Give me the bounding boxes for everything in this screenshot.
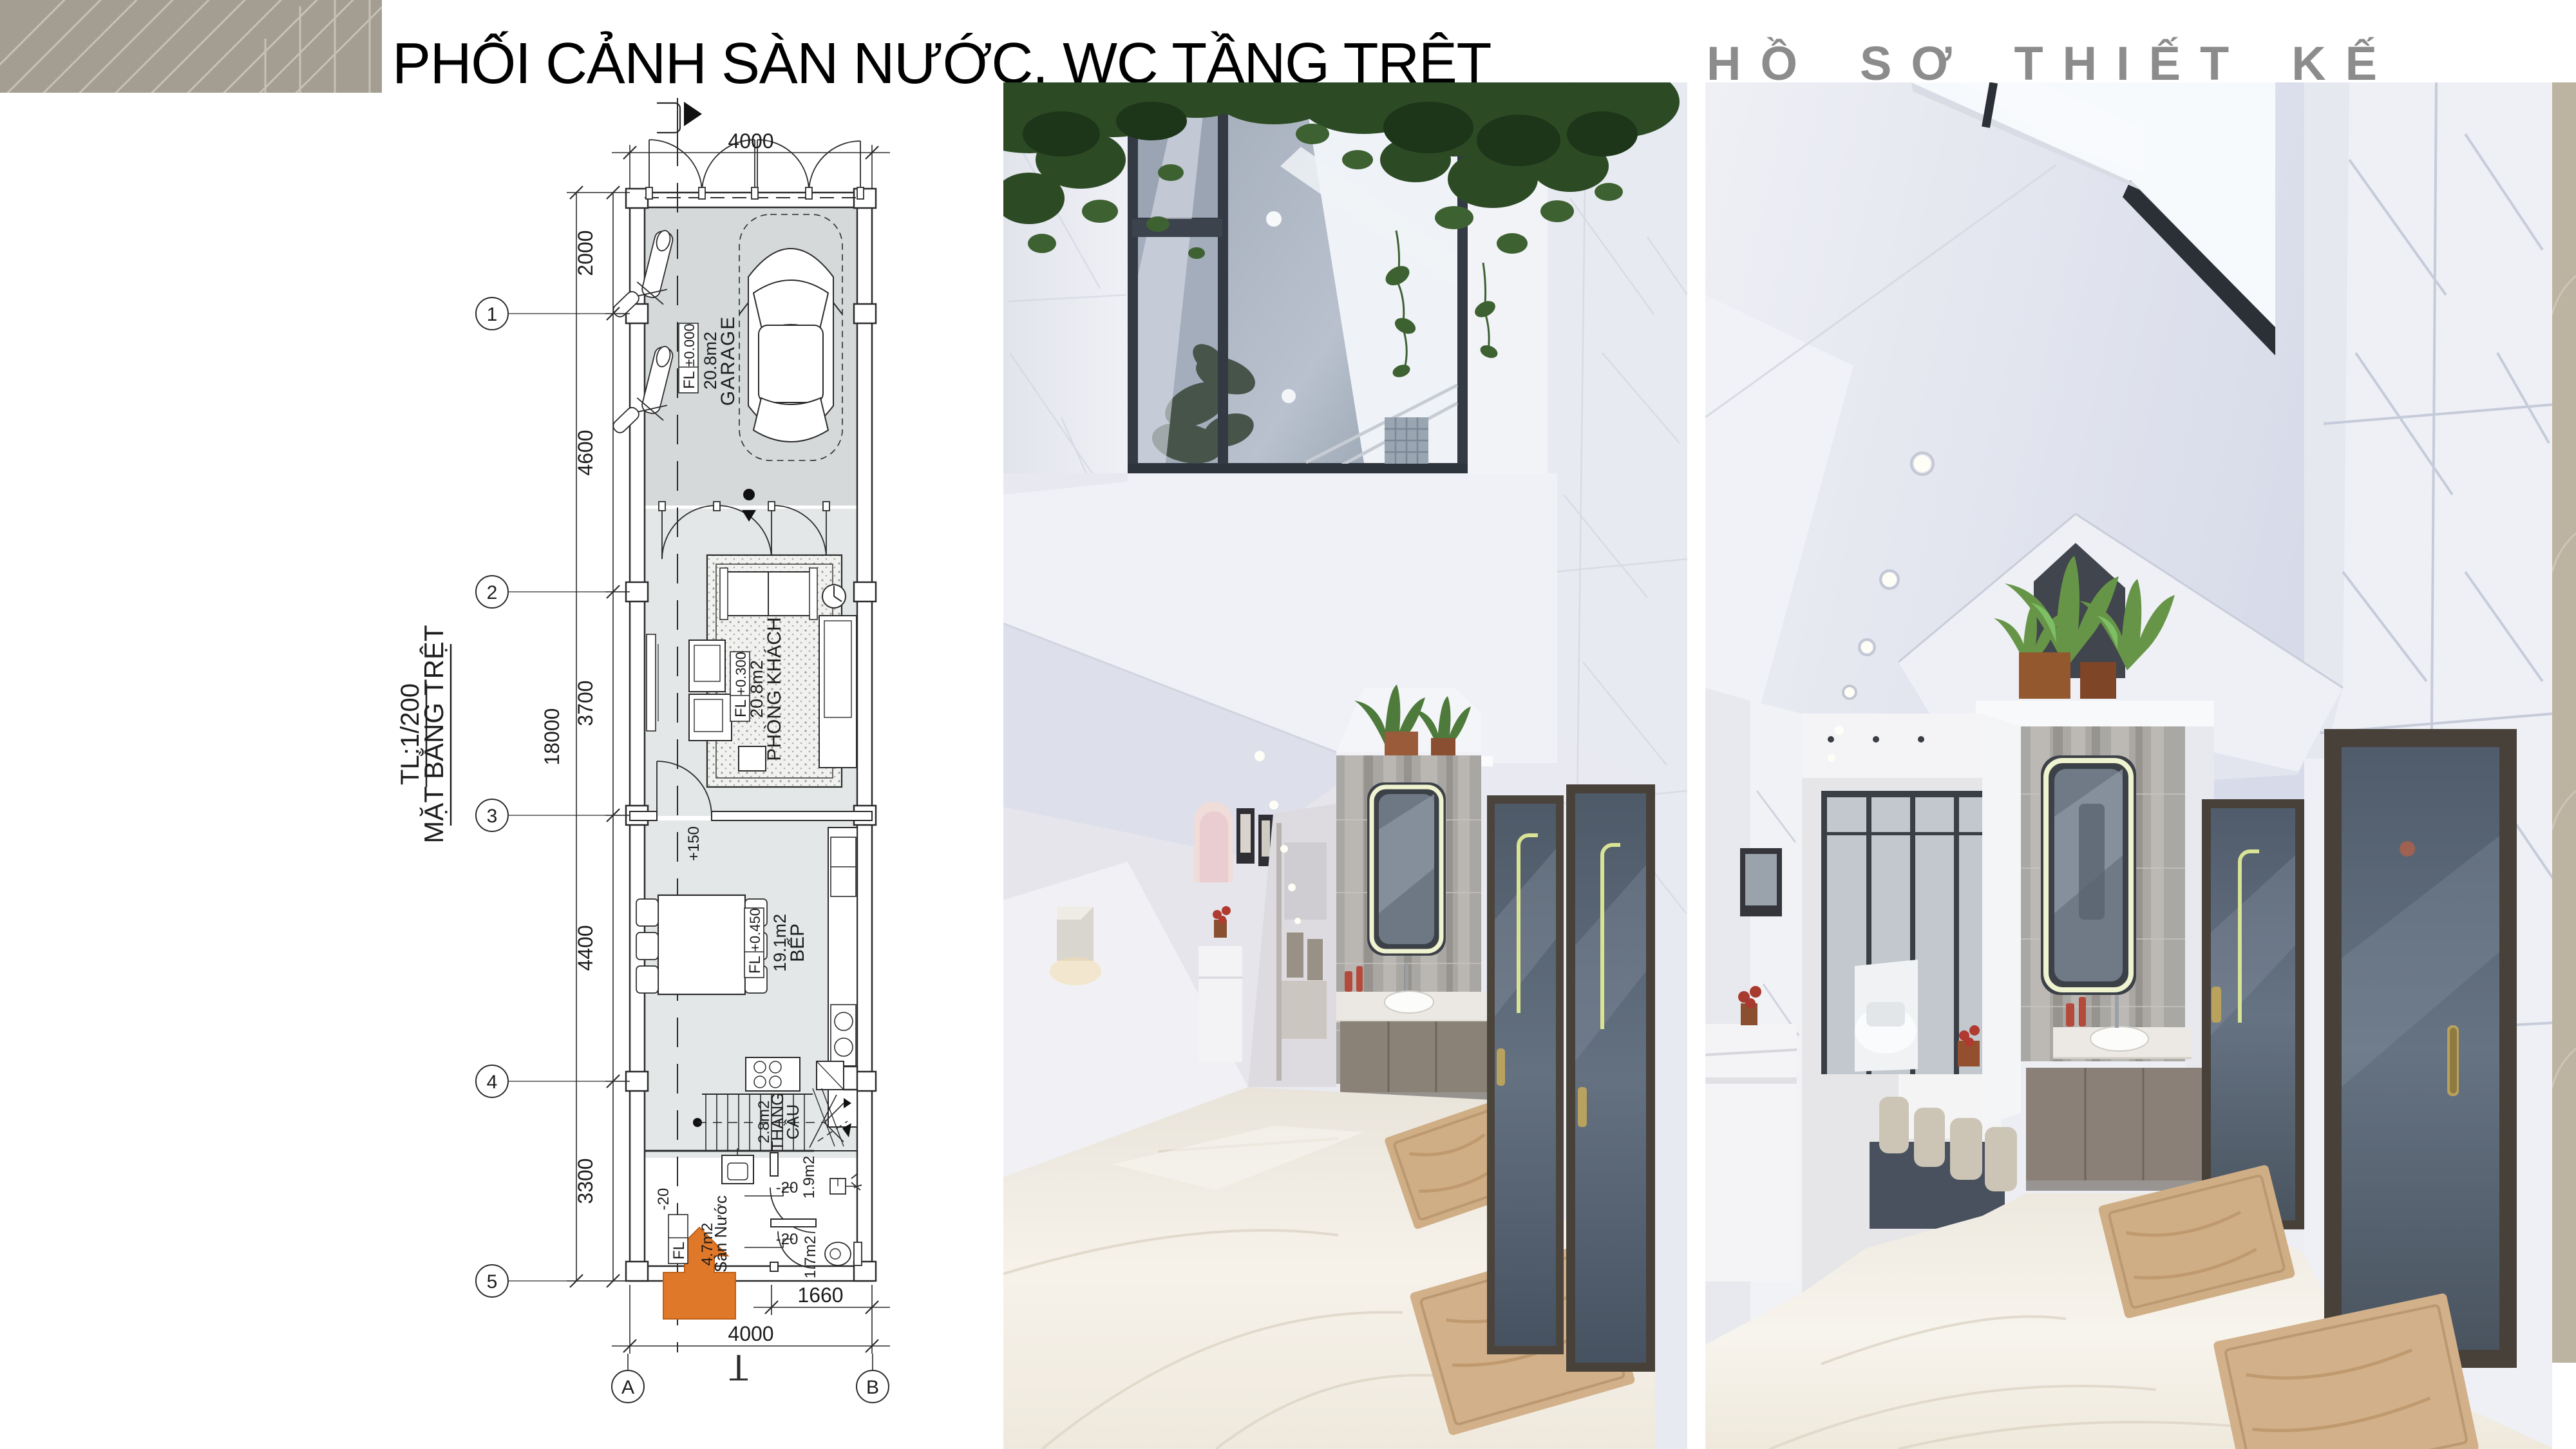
svg-text:2000: 2000	[574, 230, 597, 276]
svg-text:3300: 3300	[574, 1158, 597, 1204]
svg-text:3: 3	[487, 806, 498, 827]
svg-text:TL:1/200: TL:1/200	[396, 683, 424, 785]
svg-text:5: 5	[487, 1271, 498, 1293]
svg-text:FL: FL	[746, 956, 764, 974]
svg-text:4000: 4000	[728, 1322, 773, 1345]
svg-text:+0.300: +0.300	[733, 652, 749, 696]
svg-text:-20: -20	[655, 1188, 672, 1211]
svg-text:1.7m2: 1.7m2	[802, 1236, 819, 1279]
svg-text:1.9m2: 1.9m2	[800, 1156, 818, 1199]
svg-text:1660: 1660	[797, 1283, 843, 1307]
svg-text:A: A	[621, 1377, 634, 1398]
svg-text:BẾP: BẾP	[786, 923, 808, 962]
svg-text:FL: FL	[732, 699, 750, 717]
svg-text:±0.000: ±0.000	[681, 323, 697, 366]
svg-text:18000: 18000	[540, 708, 563, 766]
svg-text:19.1m2: 19.1m2	[770, 914, 790, 972]
svg-text:4600: 4600	[574, 430, 597, 475]
svg-text:1: 1	[487, 304, 498, 325]
svg-text:4400: 4400	[574, 925, 597, 971]
svg-text:2: 2	[487, 582, 498, 603]
svg-text:PHÒNG KHÁCH: PHÒNG KHÁCH	[764, 617, 785, 761]
svg-text:-20: -20	[776, 1179, 799, 1197]
svg-text:+0.450: +0.450	[747, 908, 763, 952]
svg-text:GARAGE: GARAGE	[717, 316, 739, 406]
svg-text:+150: +150	[685, 826, 703, 861]
svg-text:FL: FL	[681, 371, 698, 389]
svg-text:4.7m2: 4.7m2	[699, 1223, 716, 1266]
svg-text:4: 4	[487, 1072, 498, 1093]
svg-text:4000: 4000	[728, 129, 773, 153]
svg-text:20.8m2: 20.8m2	[701, 332, 720, 390]
svg-text:-20: -20	[776, 1231, 799, 1248]
svg-text:B: B	[866, 1377, 879, 1398]
svg-text:3700: 3700	[574, 680, 597, 726]
svg-text:2.8m2: 2.8m2	[755, 1101, 773, 1144]
svg-text:FL: FL	[670, 1242, 688, 1260]
